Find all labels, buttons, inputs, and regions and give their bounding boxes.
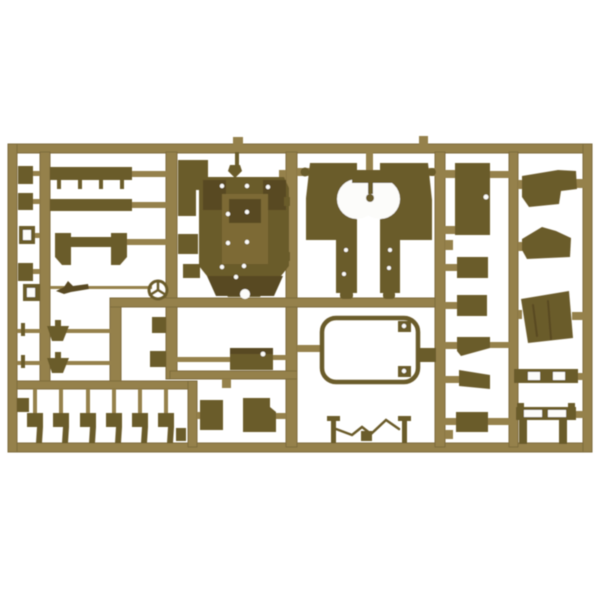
rail-v5 [509, 152, 518, 447]
hull-recess [229, 199, 261, 223]
hull-hole-4 [226, 212, 230, 216]
part-tab-l4 [17, 398, 29, 412]
staple-hole-2 [27, 288, 35, 297]
hook-stub-3 [86, 389, 90, 414]
part-block-l1 [18, 166, 33, 184]
fender-bridge-pin [368, 183, 373, 194]
rail-v1 [110, 301, 121, 387]
runner-crossmember-right [126, 239, 168, 245]
hull-stub-right-1 [284, 197, 290, 206]
part-block-v2a [178, 234, 198, 254]
gate-tab-h4 [222, 379, 231, 388]
towbar-block [361, 431, 372, 441]
gate-tab-top-a [233, 137, 243, 145]
sprue-illustration [0, 0, 600, 600]
runningboard-peg-2 [78, 180, 82, 189]
runner-bar2-right [130, 202, 168, 208]
stub-r3-left [518, 310, 522, 319]
fender-right-foot [383, 291, 395, 299]
part-block-l3 [18, 263, 33, 281]
rail-right [583, 144, 592, 452]
crossmember-beam [66, 237, 116, 247]
gate-dot-right [428, 168, 436, 176]
leg-hole-l1 [344, 248, 348, 252]
stub-radiobox-right [272, 355, 287, 360]
part-bracket-b [150, 351, 166, 367]
rail-v2 [166, 152, 177, 379]
r4-hole-2 [553, 372, 565, 380]
leg-hole-r1 [388, 248, 392, 252]
gate-tab-top-b [419, 136, 428, 145]
stub-bridge-top [366, 152, 373, 172]
hull-hole-1 [220, 184, 224, 188]
stub-p4-right [489, 342, 510, 348]
hull-hole-3 [266, 185, 270, 189]
stub-p5 [444, 376, 460, 383]
towbar-cap-left [327, 416, 340, 421]
r5-leg-left [519, 420, 527, 444]
fender-right-cutout [360, 179, 400, 219]
stub-p1-right [489, 171, 510, 178]
windshield-tab-right [420, 348, 436, 362]
wire-pin-2 [21, 355, 25, 368]
part-p6 [456, 412, 488, 432]
part-bracket-a [152, 317, 166, 333]
gate-dot-left [301, 168, 310, 177]
hull-hole-8 [220, 265, 224, 269]
stub-windshield-left [297, 345, 323, 352]
staple-hole-1 [23, 230, 31, 240]
hook-stub-4 [112, 389, 116, 414]
rail-box-right [188, 381, 197, 447]
stub-p4 [444, 342, 458, 349]
part-block-v2b [183, 264, 200, 278]
runner-bar1-right [130, 171, 168, 177]
stub-p1-a [444, 170, 456, 178]
fender-bridge [352, 170, 392, 183]
leg-hole-l2 [342, 272, 346, 276]
rail-left [8, 144, 17, 452]
stub-block3 [32, 269, 40, 274]
hull-hole-5 [245, 210, 249, 214]
r5-hole-1 [524, 410, 542, 417]
part-runningboard [50, 167, 132, 180]
stub-r1-right [576, 179, 584, 188]
r5-hole-2 [548, 410, 566, 417]
fender-left-foot [340, 291, 353, 299]
towbar-post-left [331, 420, 336, 443]
stub-p3 [444, 302, 458, 309]
r5-cap-right [568, 403, 575, 408]
part-r4-bar [514, 369, 578, 383]
hull-hole-10 [234, 275, 238, 279]
stub-p1-b [444, 226, 456, 234]
wire-pin-1 [21, 323, 25, 336]
leg-hole-r2 [387, 266, 391, 270]
hull-gate-pin [235, 152, 239, 167]
part-bar2 [50, 199, 132, 211]
stub-p6 [444, 418, 457, 425]
hull-hole-7 [245, 240, 249, 244]
stub-r5-right [575, 411, 584, 418]
hull-stub-right-2 [284, 252, 290, 261]
gate-tab-v4-a [445, 240, 453, 250]
hook-stub-5 [138, 389, 142, 414]
stub-p6-right [487, 418, 510, 425]
rail-v4 [435, 152, 445, 447]
towbar-post-right [402, 420, 407, 443]
rail-top [8, 144, 592, 153]
radio-hole [261, 352, 266, 357]
r5-cap-left [517, 403, 524, 408]
p1-hole [484, 195, 489, 200]
hull-notch [240, 289, 250, 299]
fender-bridge-ball [366, 194, 374, 202]
hull-hole-6 [226, 241, 230, 245]
hook-block [176, 428, 186, 441]
radio-box-lid [230, 348, 273, 354]
tripod1-stem [55, 320, 61, 327]
windshield-hole-bottom [402, 369, 406, 373]
rail-v0 [40, 152, 50, 389]
hook-stub-2 [59, 389, 63, 414]
part-block-l2 [18, 193, 33, 210]
windshield-hole-top [402, 324, 406, 328]
rail-h4 [170, 371, 297, 379]
hook-stub-6 [164, 389, 168, 414]
product-photo-sprue [0, 0, 600, 600]
gate-tab-v4-b [445, 430, 453, 439]
runningboard-peg-4 [120, 180, 124, 189]
stub-r3-right [572, 312, 584, 320]
hull-hole-2 [245, 184, 249, 188]
part-low-a [200, 400, 223, 430]
stub-lowpart-b [275, 413, 286, 419]
part-p2 [457, 257, 488, 278]
rail-bottom [8, 443, 592, 452]
runner-radiobox-left [176, 357, 230, 362]
r4-hole-1 [528, 372, 540, 380]
runningboard-peg-1 [57, 180, 61, 189]
part-p3 [457, 295, 487, 316]
stub-p2 [444, 264, 458, 271]
part-r3-plate [521, 291, 573, 343]
hook-stub-1 [33, 389, 37, 414]
towbar-cap-right [398, 416, 411, 421]
tripod2-stem [55, 352, 61, 359]
hull-hole-9 [242, 264, 246, 268]
stub-r4-right [577, 373, 584, 380]
fender-left-leg [336, 240, 357, 293]
rail-box-top [17, 381, 197, 389]
r5-leg-right [559, 420, 567, 444]
stub-block2 [32, 199, 40, 204]
stub-block1 [32, 171, 40, 176]
runningboard-peg-3 [99, 180, 103, 189]
